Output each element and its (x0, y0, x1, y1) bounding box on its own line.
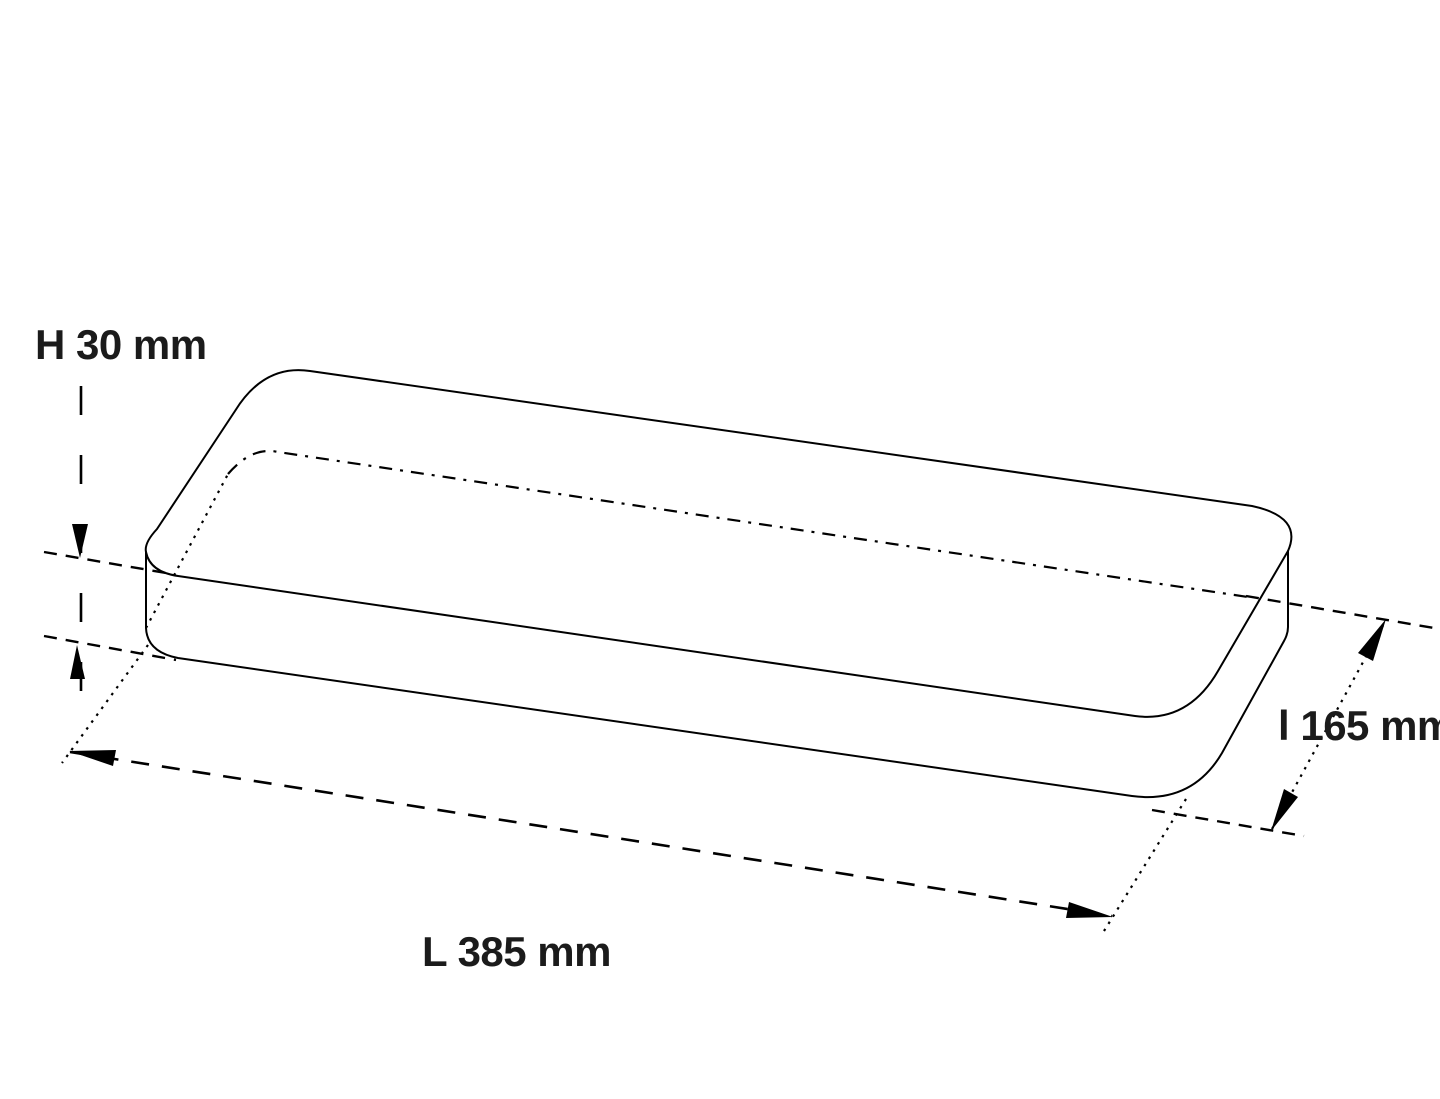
slab-silhouette (146, 370, 1292, 797)
hidden-bottom-left-edge (146, 474, 228, 628)
length-arrow-right-icon (1066, 902, 1113, 918)
length-dimension-line (70, 752, 1112, 916)
technical-drawing: H 30 mm L 385 mm l 165 mm (0, 0, 1440, 1099)
width-extension-top (1246, 596, 1434, 628)
height-extension-top (44, 552, 172, 574)
length-extension-right (1104, 799, 1186, 931)
hidden-bottom-back-edge (228, 451, 1248, 597)
height-arrow-up-icon (70, 645, 85, 679)
width-arrow-upper-icon (1358, 619, 1386, 661)
length-arrow-left-icon (69, 750, 116, 766)
length-dimension-label: L 385 mm (422, 928, 611, 975)
height-dimension-label: H 30 mm (35, 321, 207, 368)
width-arrow-lower-icon (1271, 789, 1298, 831)
height-arrow-down-icon (72, 524, 88, 558)
slab-top-face-front-edge (146, 551, 1288, 717)
width-dimension-label: l 165 mm (1278, 702, 1440, 749)
